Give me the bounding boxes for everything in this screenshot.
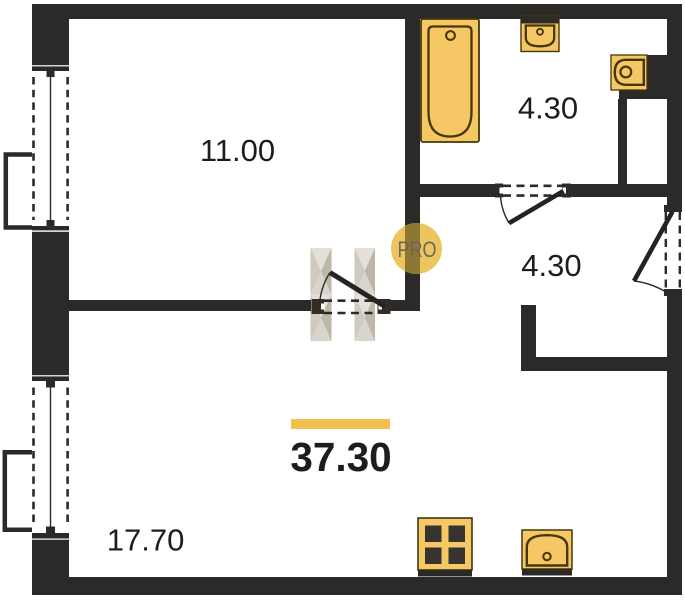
svg-text:4.30: 4.30 [518,91,578,126]
svg-text:PRO: PRO [398,237,437,262]
svg-text:4.30: 4.30 [521,248,581,283]
svg-text:17.70: 17.70 [107,522,185,557]
svg-text:11.00: 11.00 [200,133,275,168]
svg-text:37.30: 37.30 [290,434,391,480]
